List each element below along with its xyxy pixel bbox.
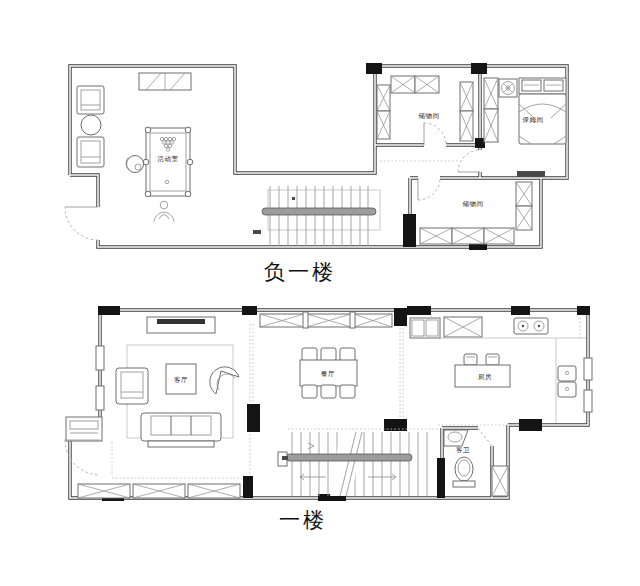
first-floor-caption: 一楼 bbox=[279, 508, 327, 532]
bench bbox=[517, 171, 545, 177]
room-label-nanny: 保姆间 bbox=[523, 116, 544, 124]
basement-stairs bbox=[253, 186, 380, 246]
sink bbox=[558, 366, 576, 397]
wall-shelf bbox=[139, 73, 191, 90]
room-label-kitchen: 厨房 bbox=[478, 373, 492, 381]
stair-break bbox=[330, 432, 362, 496]
first-floor-plan: 客厅 餐厅 厨房 客卫 一楼 bbox=[65, 306, 592, 532]
round-chair bbox=[126, 156, 144, 173]
room-label-storage2: 储物间 bbox=[463, 200, 484, 208]
toilet bbox=[453, 457, 475, 487]
floorplan-drawing: 活动室 储物间 保姆间 储物间 负一楼 bbox=[0, 0, 640, 586]
room-label-living: 客厅 bbox=[174, 376, 188, 384]
kitchen-island bbox=[455, 354, 510, 387]
room-label-activity: 活动室 bbox=[158, 155, 179, 163]
bathroom-sink bbox=[444, 430, 468, 446]
tv-cabinet bbox=[147, 317, 215, 333]
kitchen-cabinet bbox=[444, 317, 482, 337]
room-label-dining: 餐厅 bbox=[321, 370, 335, 378]
sofa bbox=[141, 413, 221, 447]
storage2-shelves bbox=[420, 182, 532, 244]
entry-porch bbox=[66, 417, 102, 441]
basement-plan: 活动室 储物间 保姆间 储物间 负一楼 bbox=[65, 63, 567, 284]
bathroom-door bbox=[478, 428, 492, 446]
armchair bbox=[77, 86, 104, 114]
swivel-chair bbox=[210, 367, 239, 394]
dining-windows bbox=[260, 312, 392, 328]
room-label-guest-bath: 客卫 bbox=[456, 446, 470, 454]
stair-handrail bbox=[262, 208, 376, 215]
floorplan-page: 活动室 储物间 保姆间 储物间 负一楼 bbox=[0, 0, 640, 586]
armchair bbox=[116, 368, 148, 404]
understair-hatch bbox=[492, 466, 508, 496]
bed bbox=[519, 78, 566, 144]
terrace-windows bbox=[78, 484, 240, 498]
person-figure bbox=[154, 201, 174, 222]
basement-caption: 负一楼 bbox=[264, 260, 336, 284]
ceiling-fan-icon bbox=[499, 79, 517, 97]
first-floor-stairs bbox=[278, 429, 438, 496]
room-label-storage1: 储物间 bbox=[419, 112, 440, 120]
fridge bbox=[410, 318, 440, 338]
basement-doors bbox=[65, 123, 480, 240]
cooktop bbox=[514, 318, 548, 334]
side-table bbox=[81, 115, 101, 135]
armchair bbox=[77, 137, 104, 167]
stair-handrail bbox=[286, 454, 412, 461]
